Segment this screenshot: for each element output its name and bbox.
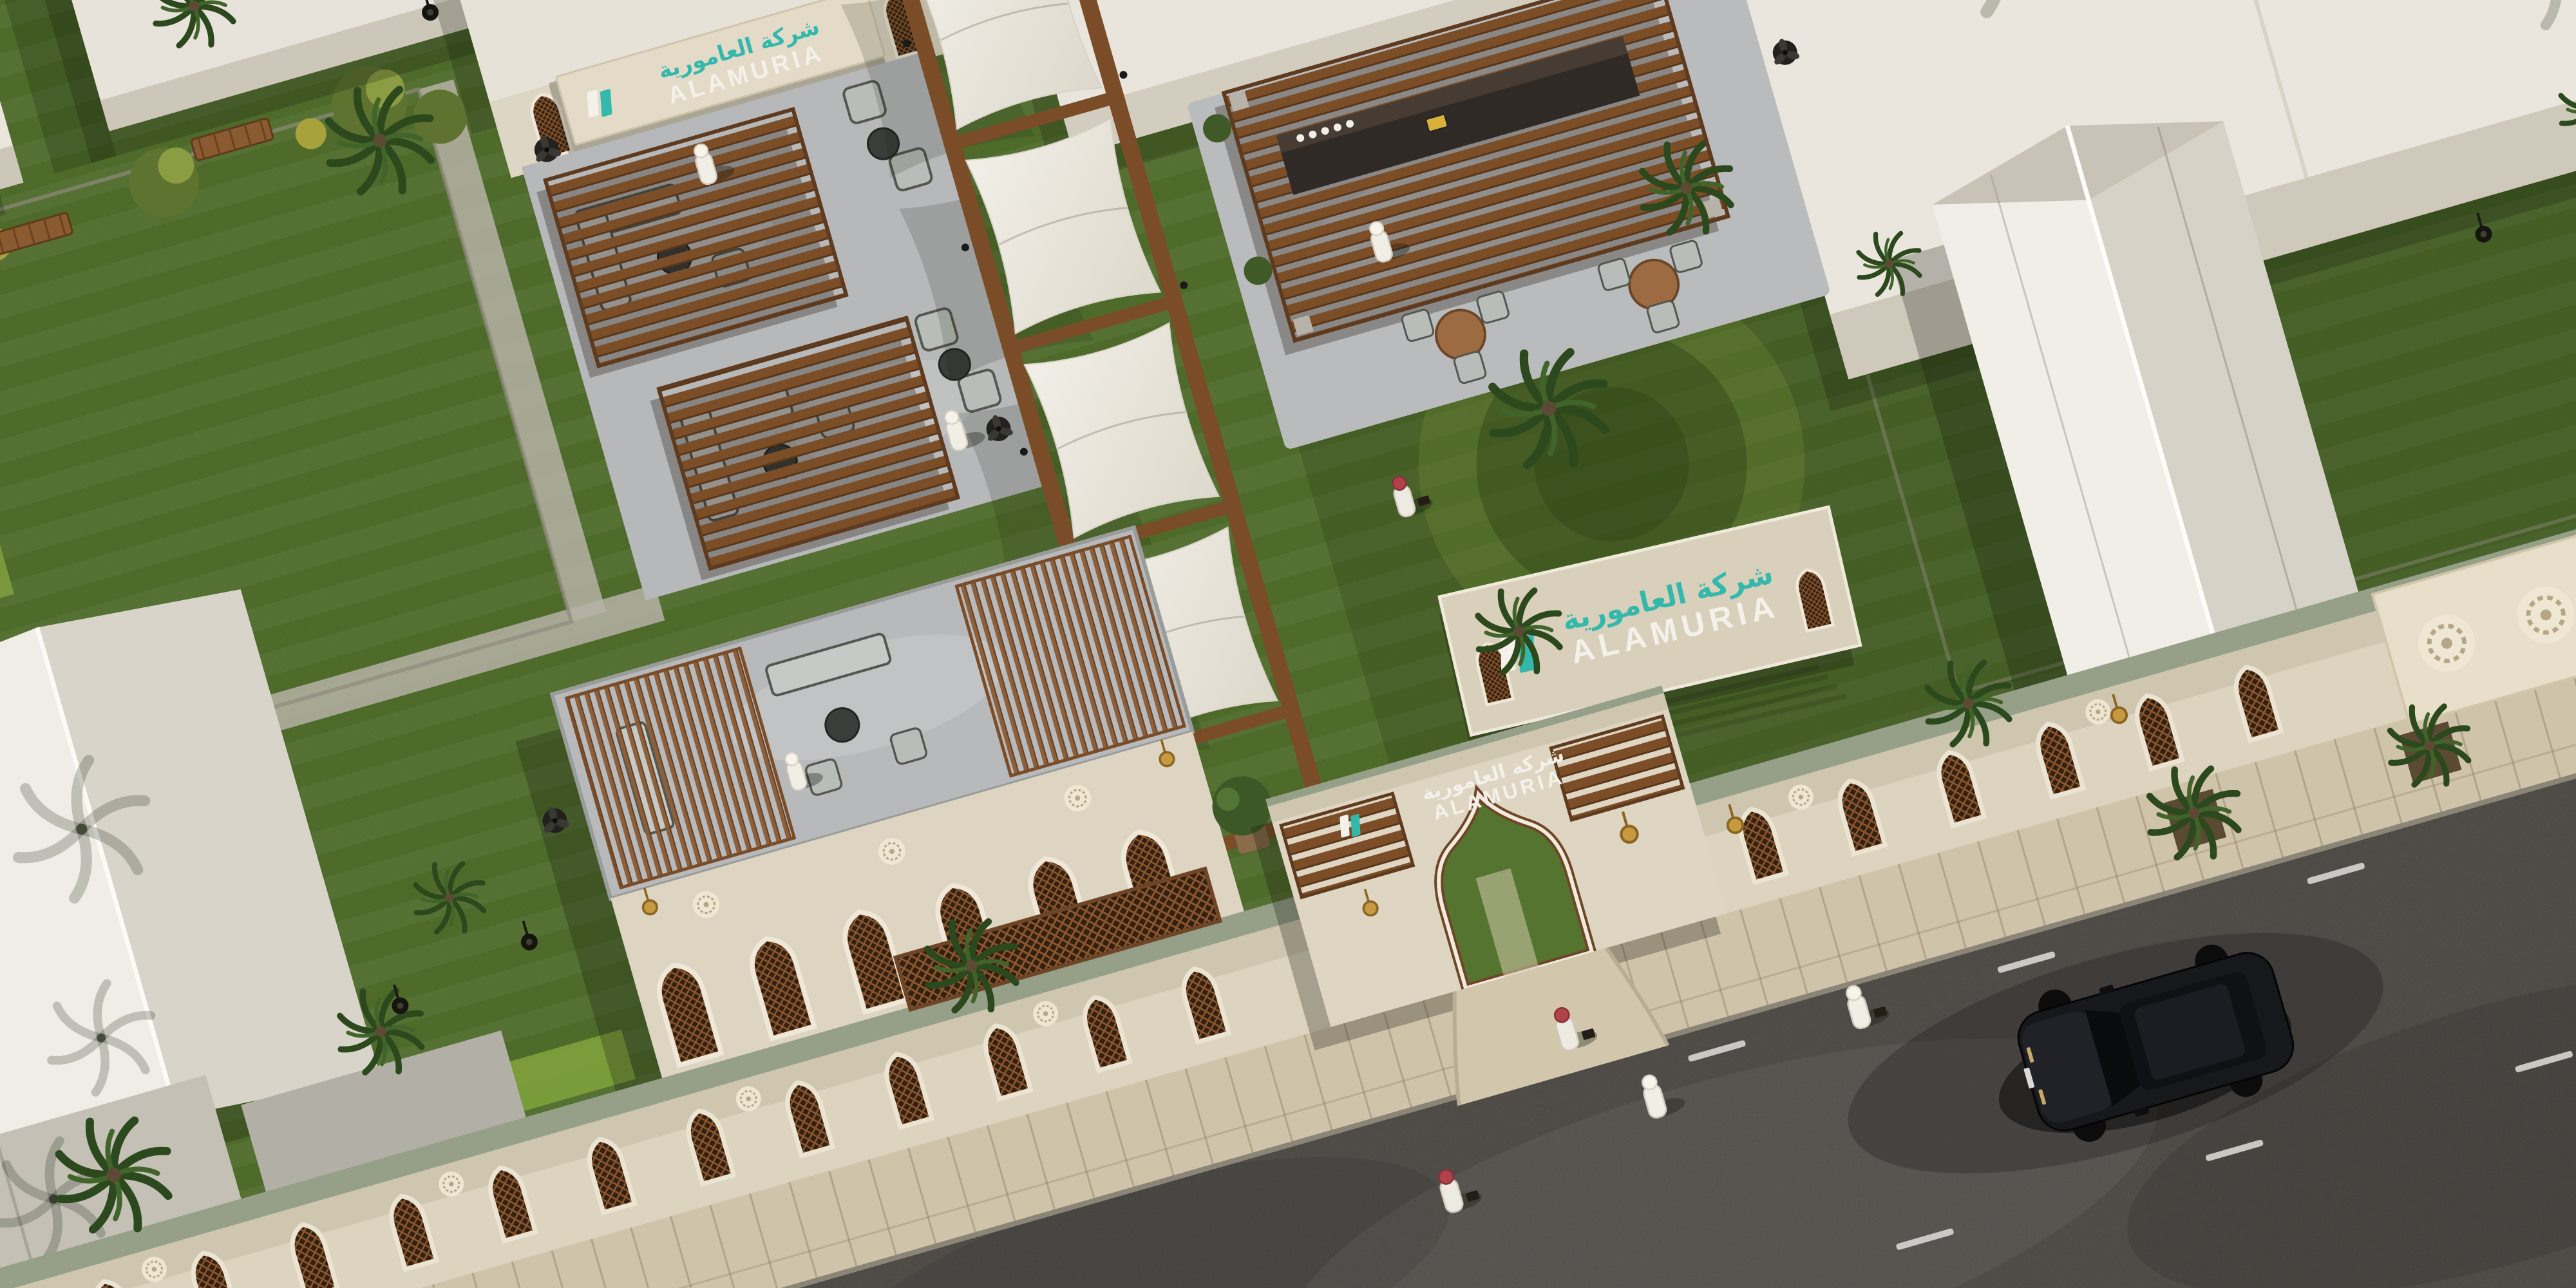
scene-canvas: شركة العامورية ALAMURIA — [0, 0, 2576, 1288]
aerial-architectural-render: شركة العامورية ALAMURIA — [0, 0, 2576, 1288]
compound-scene: شركة العامورية ALAMURIA — [0, 0, 2576, 1288]
